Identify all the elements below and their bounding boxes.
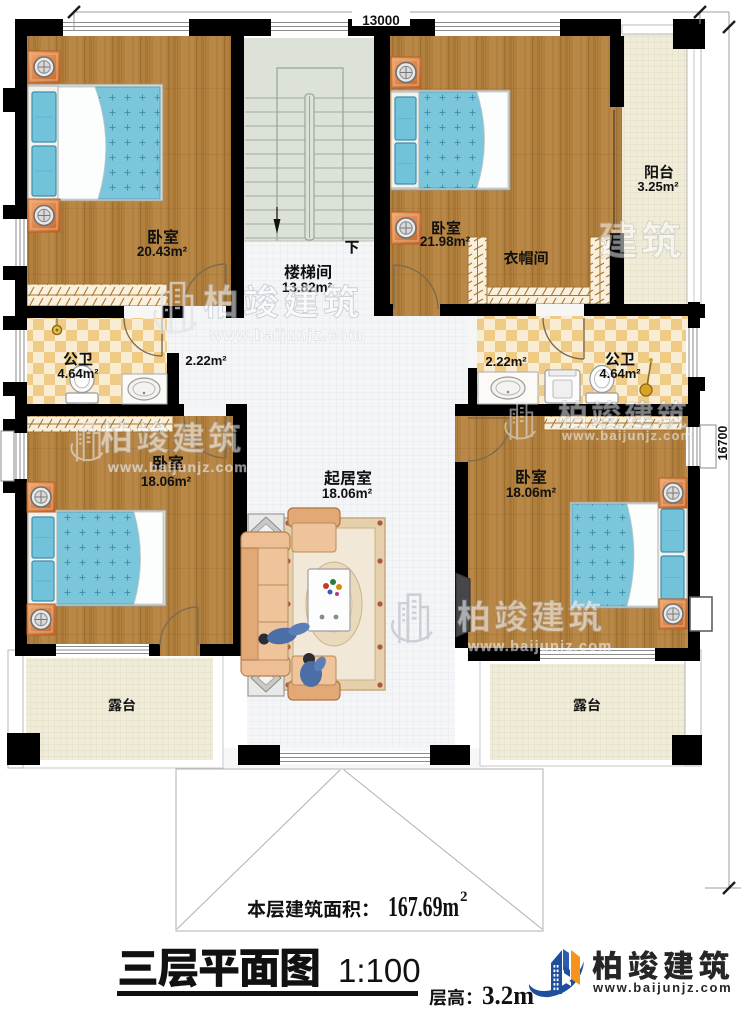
- svg-text:www.baijunjz.com: www.baijunjz.com: [561, 428, 693, 443]
- svg-text:3.2m: 3.2m: [482, 981, 534, 1010]
- svg-text:20.43m²: 20.43m²: [137, 244, 188, 259]
- svg-text:2: 2: [460, 889, 468, 905]
- svg-text:3.25m²: 3.25m²: [637, 179, 679, 194]
- svg-text:4.64m²: 4.64m²: [599, 366, 641, 381]
- svg-text:www.baijunjz.com: www.baijunjz.com: [592, 980, 732, 995]
- svg-text:www.baijunjz.com: www.baijunjz.com: [467, 639, 612, 655]
- svg-text:4.64m²: 4.64m²: [57, 366, 99, 381]
- svg-text:www.baijunjz.com: www.baijunjz.com: [209, 327, 363, 344]
- svg-text:18.06m²: 18.06m²: [322, 486, 373, 501]
- svg-text:18.06m²: 18.06m²: [506, 485, 557, 500]
- svg-text:1:100: 1:100: [338, 952, 421, 989]
- svg-text:21.98m²: 21.98m²: [420, 234, 471, 249]
- svg-text:www.baijunjz.com: www.baijunjz.com: [107, 459, 248, 475]
- svg-text:2.22m²: 2.22m²: [485, 354, 527, 369]
- svg-text:16700: 16700: [716, 426, 730, 461]
- svg-text:167.69m: 167.69m: [388, 892, 459, 923]
- svg-text:13000: 13000: [362, 13, 400, 28]
- svg-text:2.22m²: 2.22m²: [185, 353, 227, 368]
- svg-text:18.06m²: 18.06m²: [141, 474, 192, 489]
